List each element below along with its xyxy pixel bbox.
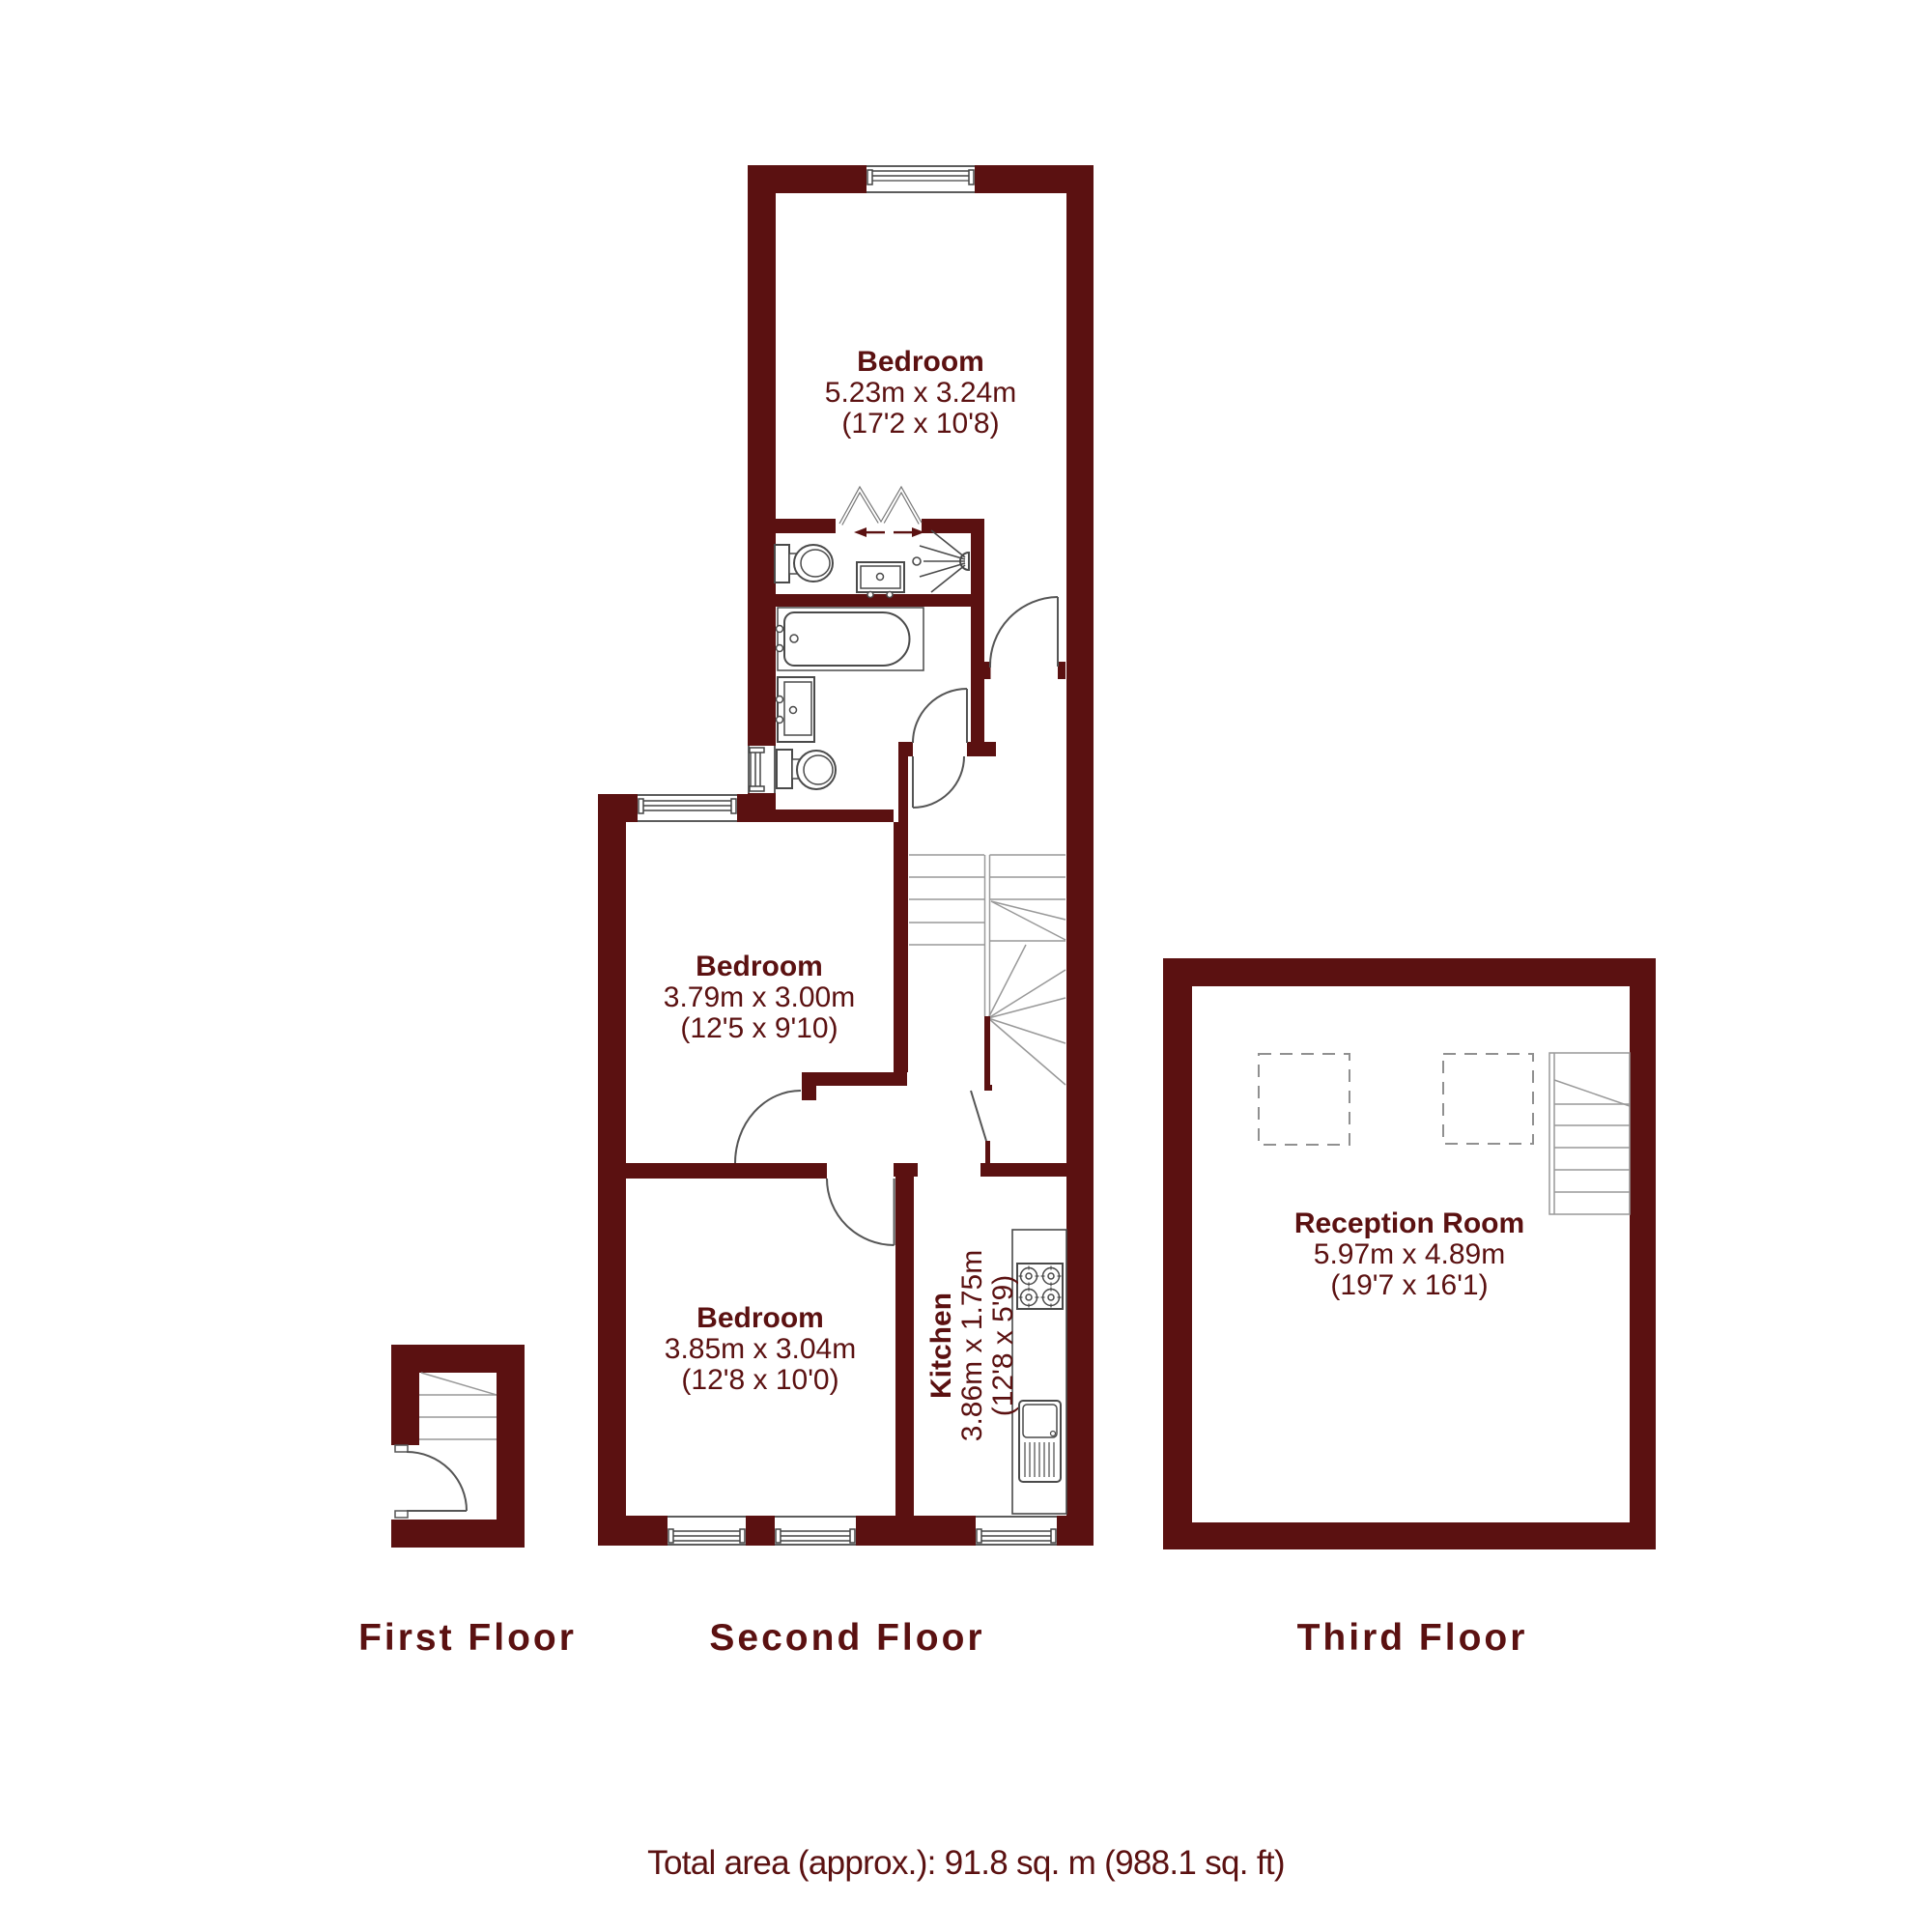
svg-text:(12'8 x 5'9): (12'8 x 5'9) <box>987 1275 1019 1417</box>
svg-text:Bedroom: Bedroom <box>696 1302 824 1334</box>
svg-text:Second Floor: Second Floor <box>709 1617 984 1659</box>
svg-text:First Floor: First Floor <box>358 1617 577 1659</box>
svg-text:Bedroom: Bedroom <box>857 346 984 378</box>
svg-text:Reception Room: Reception Room <box>1294 1207 1524 1239</box>
svg-text:Third Floor: Third Floor <box>1297 1617 1528 1659</box>
svg-text:5.97m x 4.89m: 5.97m x 4.89m <box>1314 1238 1505 1270</box>
svg-text:3.79m x 3.00m: 3.79m x 3.00m <box>664 981 855 1013</box>
svg-text:5.23m x 3.24m: 5.23m x 3.24m <box>825 377 1016 409</box>
svg-text:Bedroom: Bedroom <box>696 951 823 982</box>
svg-text:3.85m x 3.04m: 3.85m x 3.04m <box>665 1333 856 1365</box>
svg-text:Kitchen: Kitchen <box>925 1293 957 1399</box>
svg-text:(12'8 x 10'0): (12'8 x 10'0) <box>681 1364 838 1396</box>
svg-text:Total area (approx.): 91.8 sq.: Total area (approx.): 91.8 sq. m (988.1 … <box>647 1844 1285 1882</box>
svg-text:(17'2 x 10'8): (17'2 x 10'8) <box>841 408 999 440</box>
svg-text:(12'5 x 9'10): (12'5 x 9'10) <box>680 1012 838 1044</box>
svg-text:(19'7 x 16'1): (19'7 x 16'1) <box>1330 1269 1488 1301</box>
svg-text:3.86m x 1.75m: 3.86m x 1.75m <box>956 1250 988 1441</box>
